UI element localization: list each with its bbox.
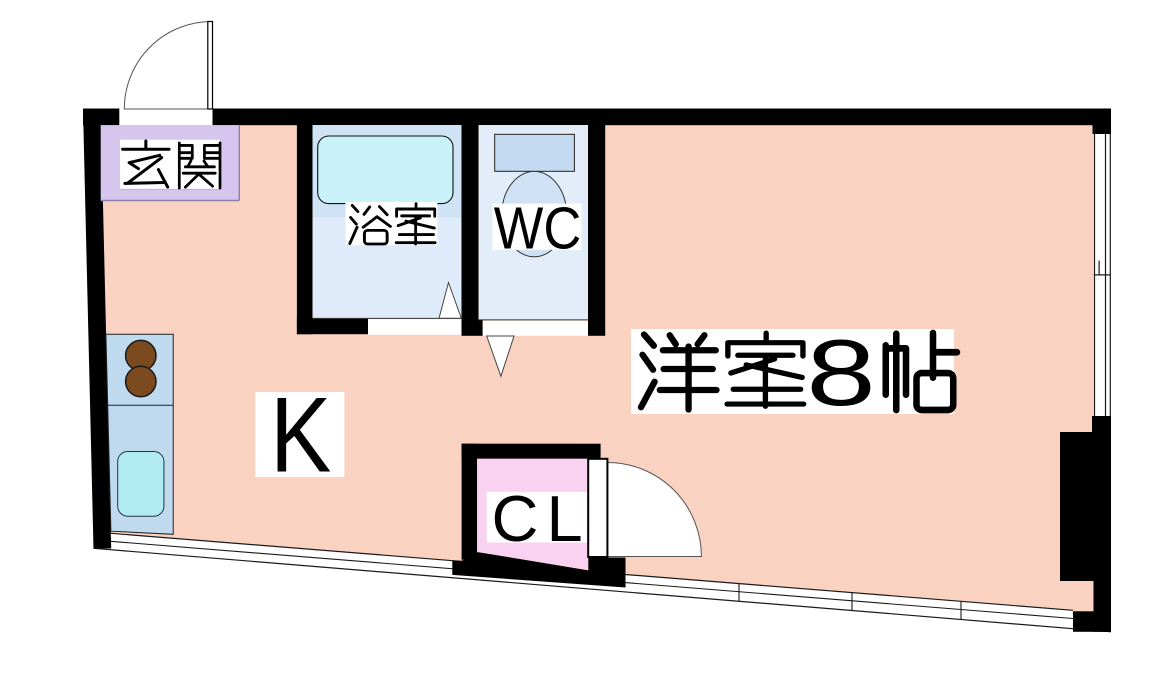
svg-text:WC: WC [494, 195, 581, 262]
svg-text:CL: CL [492, 482, 591, 555]
svg-text:8: 8 [806, 321, 876, 426]
svg-text:K: K [270, 376, 331, 495]
